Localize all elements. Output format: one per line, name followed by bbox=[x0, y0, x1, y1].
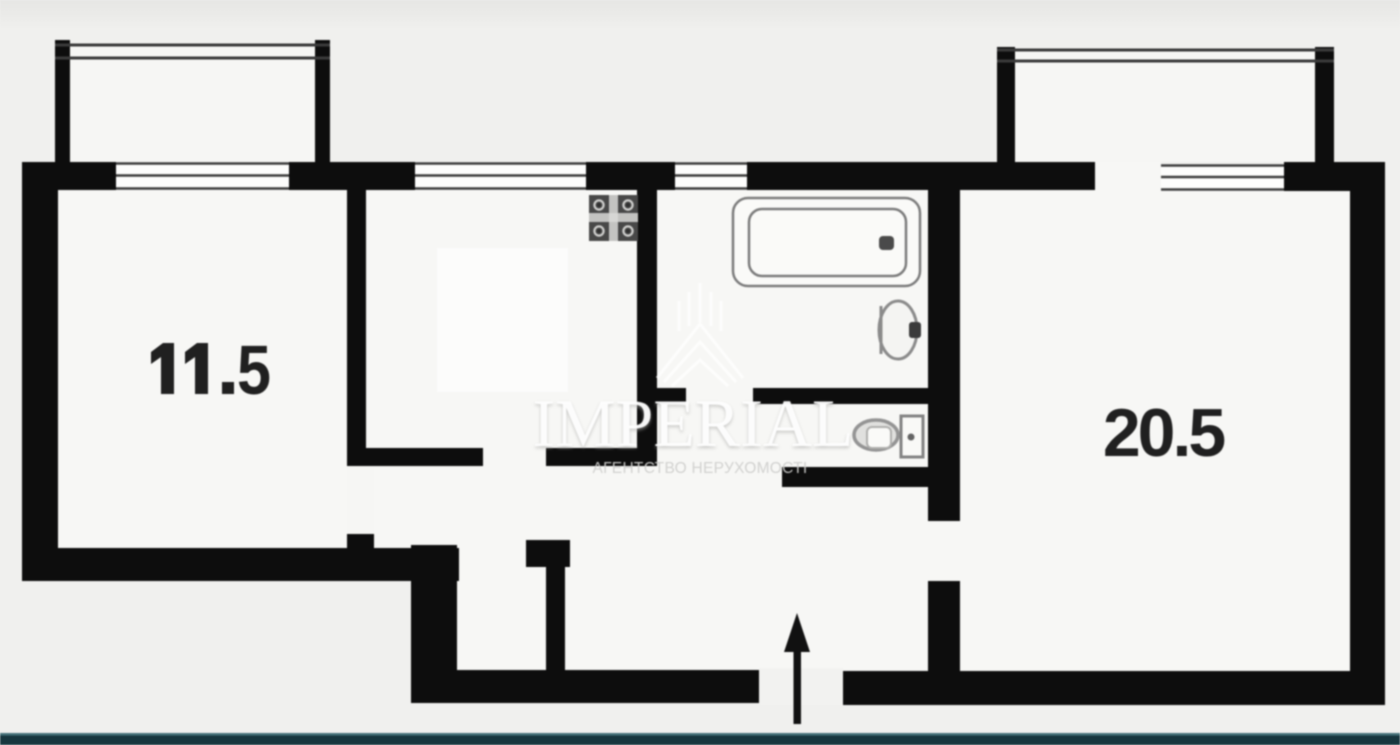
svg-text:АГЕНТСТВО НЕРУХОМОСТІ: АГЕНТСТВО НЕРУХОМОСТІ bbox=[592, 460, 807, 477]
svg-text:5: 5 bbox=[237, 331, 271, 409]
svg-text:IMPERIAL: IMPERIAL bbox=[532, 385, 853, 461]
svg-text:20.5: 20.5 bbox=[1103, 395, 1225, 471]
